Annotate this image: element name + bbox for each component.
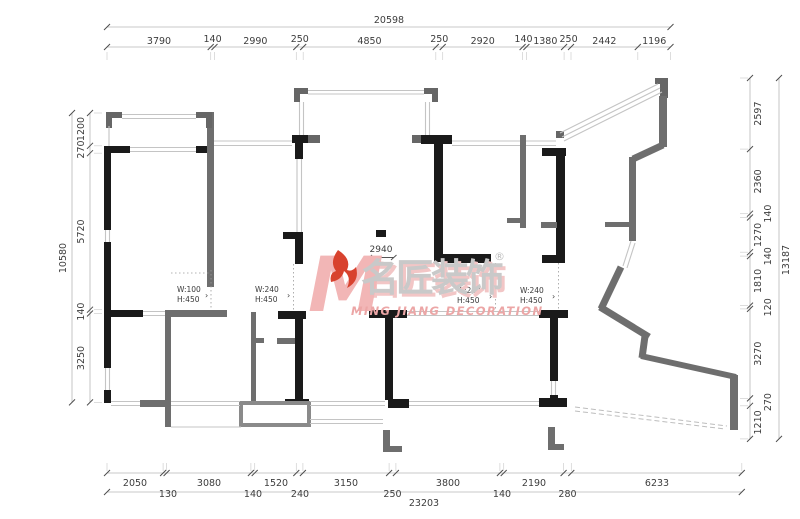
dim-bottom-segments [104, 463, 745, 476]
opening-width: W:240 [520, 286, 544, 295]
opening-height: H:450 [177, 295, 200, 304]
dim-label: 250 [383, 489, 401, 500]
dim-top-overall-label: 20598 [374, 15, 404, 26]
dim-label: 3250 [76, 346, 87, 370]
floor-plan-page: 20598 3790 140 2990 250 4850 250 2920 14… [0, 0, 800, 519]
dim-label: 1200 [76, 117, 87, 141]
dim-left-overall [69, 110, 75, 405]
opening-width: W:100 [177, 285, 201, 294]
dim-left-overall-label: 10580 [58, 243, 69, 273]
arrow-right-icon: › [287, 291, 290, 300]
dim-label: 2050 [123, 478, 147, 489]
dim-label: 140 [763, 205, 774, 223]
dim-label: 1810 [753, 269, 764, 293]
dim-label: 140 [493, 489, 511, 500]
dim-label: 1210 [753, 410, 764, 434]
floor-plan-drawing: 20598 3790 140 2990 250 4850 250 2920 14… [0, 0, 800, 519]
dim-label: 130 [159, 489, 177, 500]
terrace-wavy-edge [575, 407, 727, 429]
dim-label: 140 [514, 34, 532, 45]
dim-label: 2990 [243, 36, 267, 47]
dim-label: 270 [763, 393, 774, 411]
dim-label: 250 [291, 34, 309, 45]
dim-label: 5720 [76, 219, 87, 243]
dim-label: 1520 [264, 478, 288, 489]
watermark: 名匠装饰 M 名匠装饰 ® MING JIANG DECORATION [308, 240, 544, 329]
dim-label: 120 [763, 298, 774, 316]
dim-label: 2190 [522, 478, 546, 489]
dim-right-segments [740, 75, 753, 442]
dim-labels-right: 2597 2360 140 1270 140 1810 120 3270 270… [753, 102, 792, 435]
dim-label: 3270 [753, 342, 764, 366]
dim-bottom-overall-label: 23203 [409, 498, 439, 509]
walls-gray-diagonal [600, 145, 736, 377]
opening-width: W:240 [255, 285, 279, 294]
dim-label: 140 [763, 247, 774, 265]
opening-height: H:450 [255, 295, 278, 304]
dim-label: 140 [76, 303, 87, 321]
dim-label: 4850 [357, 36, 381, 47]
dim-label: 270 [76, 140, 87, 158]
registered-mark-icon: ® [494, 250, 505, 263]
dim-label: 2442 [592, 36, 616, 47]
watermark-cn: 名匠装饰 [361, 256, 503, 300]
dim-labels-top: 20598 3790 140 2990 250 4850 250 2920 14… [147, 15, 666, 47]
dim-label: 280 [558, 489, 576, 500]
arrow-right-icon: › [552, 292, 555, 301]
dim-label: 2920 [471, 36, 495, 47]
dim-label: 140 [204, 34, 222, 45]
arrow-right-icon: › [205, 291, 208, 300]
dim-bottom-overall [104, 489, 745, 495]
dim-label: 3150 [334, 478, 358, 489]
dim-top-segments [104, 44, 674, 60]
dim-labels-bottom: 2050 3080 1520 3150 3800 2190 6233 130 1… [123, 478, 669, 509]
dim-label: 6233 [645, 478, 669, 489]
dim-label: 240 [291, 489, 309, 500]
dim-right-overall-label: 13187 [781, 245, 792, 275]
dim-label: 3790 [147, 36, 171, 47]
dim-left-segments [87, 110, 102, 405]
dim-label: 2597 [753, 102, 764, 126]
dim-label: 250 [560, 34, 578, 45]
dim-label: 3080 [197, 478, 221, 489]
dim-label: 1196 [642, 36, 666, 47]
bottom-balcony [241, 403, 309, 425]
watermark-en: MING JIANG DECORATION [351, 304, 544, 318]
dim-labels-left: 1200 270 5720 140 3250 10580 [58, 117, 87, 370]
dim-label: 140 [244, 489, 262, 500]
dim-label: 1270 [753, 223, 764, 247]
dim-label: 1380 [533, 36, 557, 47]
dim-label: 250 [430, 34, 448, 45]
dim-label: 3800 [436, 478, 460, 489]
dim-label: 2360 [753, 169, 764, 193]
